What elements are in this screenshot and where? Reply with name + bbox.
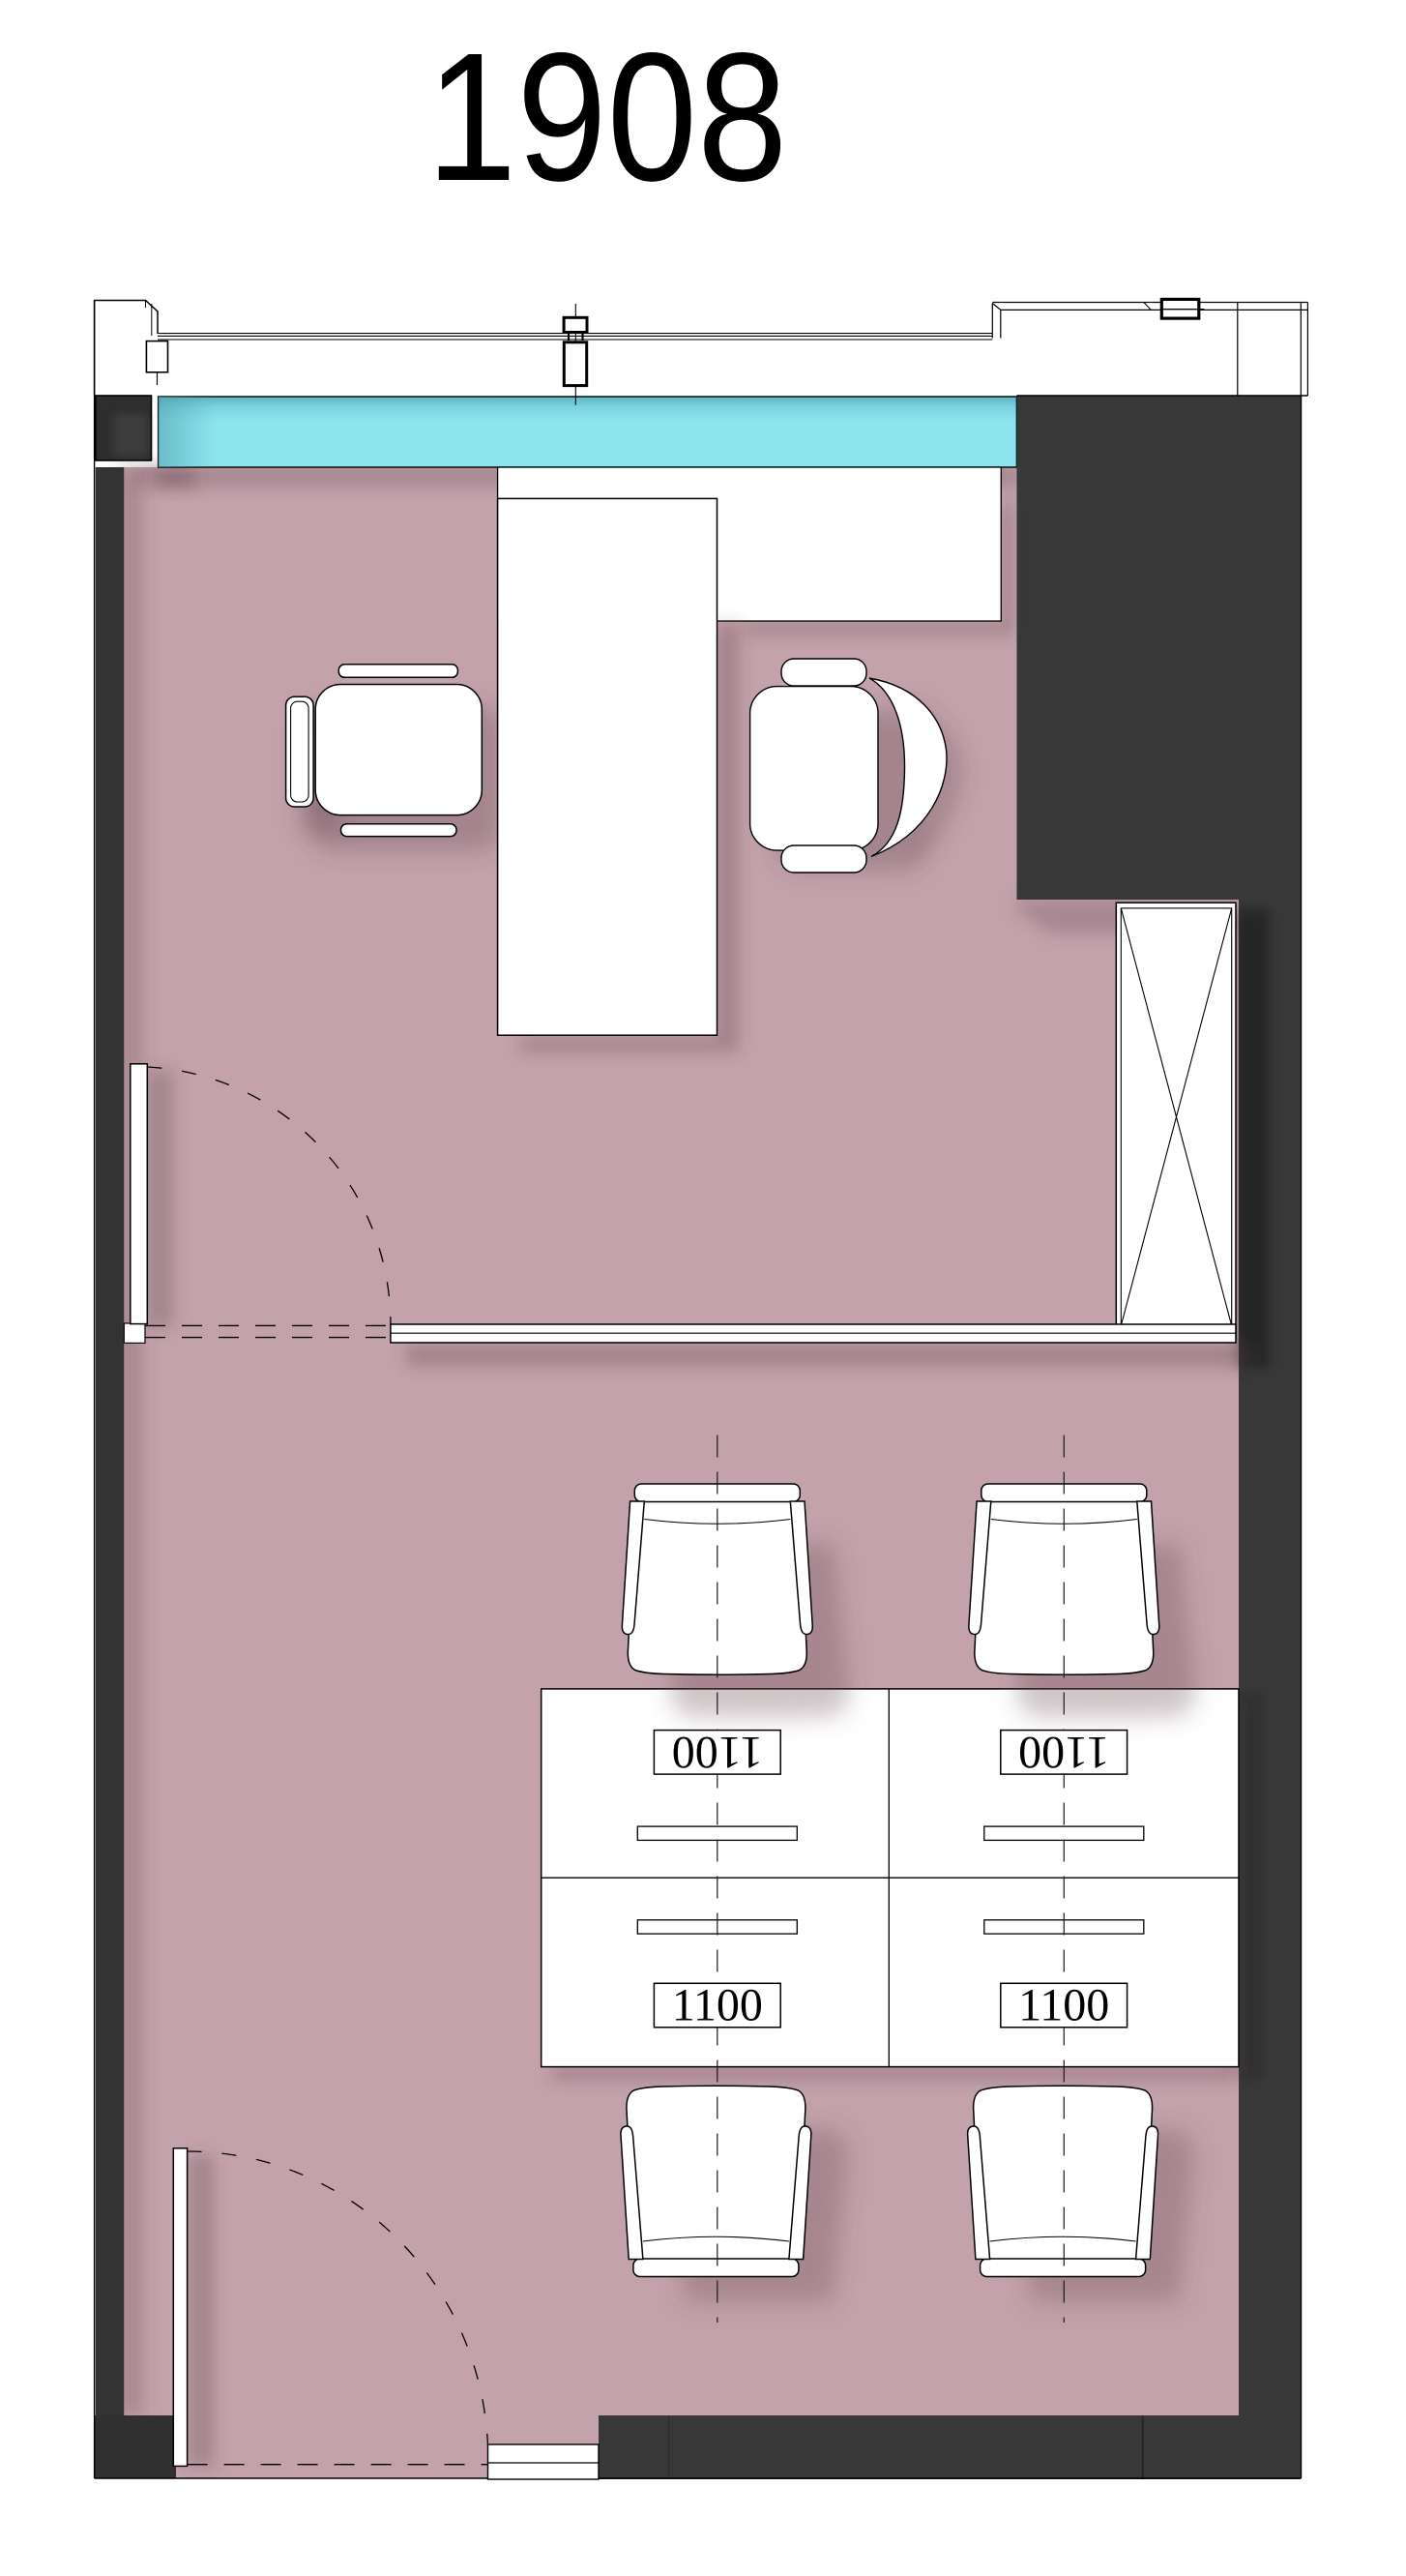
svg-text:1100: 1100 [1018,1980,1109,2031]
svg-text:1100: 1100 [1018,1727,1109,1778]
svg-text:1100: 1100 [672,1727,763,1778]
svg-text:1100: 1100 [672,1980,763,2031]
svg-text:1908: 1908 [426,15,787,219]
